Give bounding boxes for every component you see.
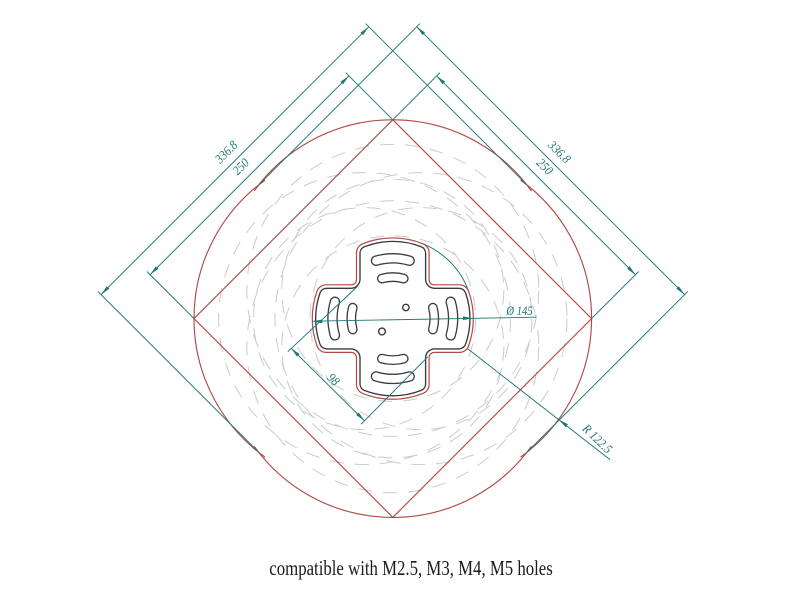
svg-text:Ø 145: Ø 145 xyxy=(505,304,532,318)
svg-text:compatible with M2.5, M3, M4,: compatible with M2.5, M3, M4, M5 holes xyxy=(269,557,552,580)
